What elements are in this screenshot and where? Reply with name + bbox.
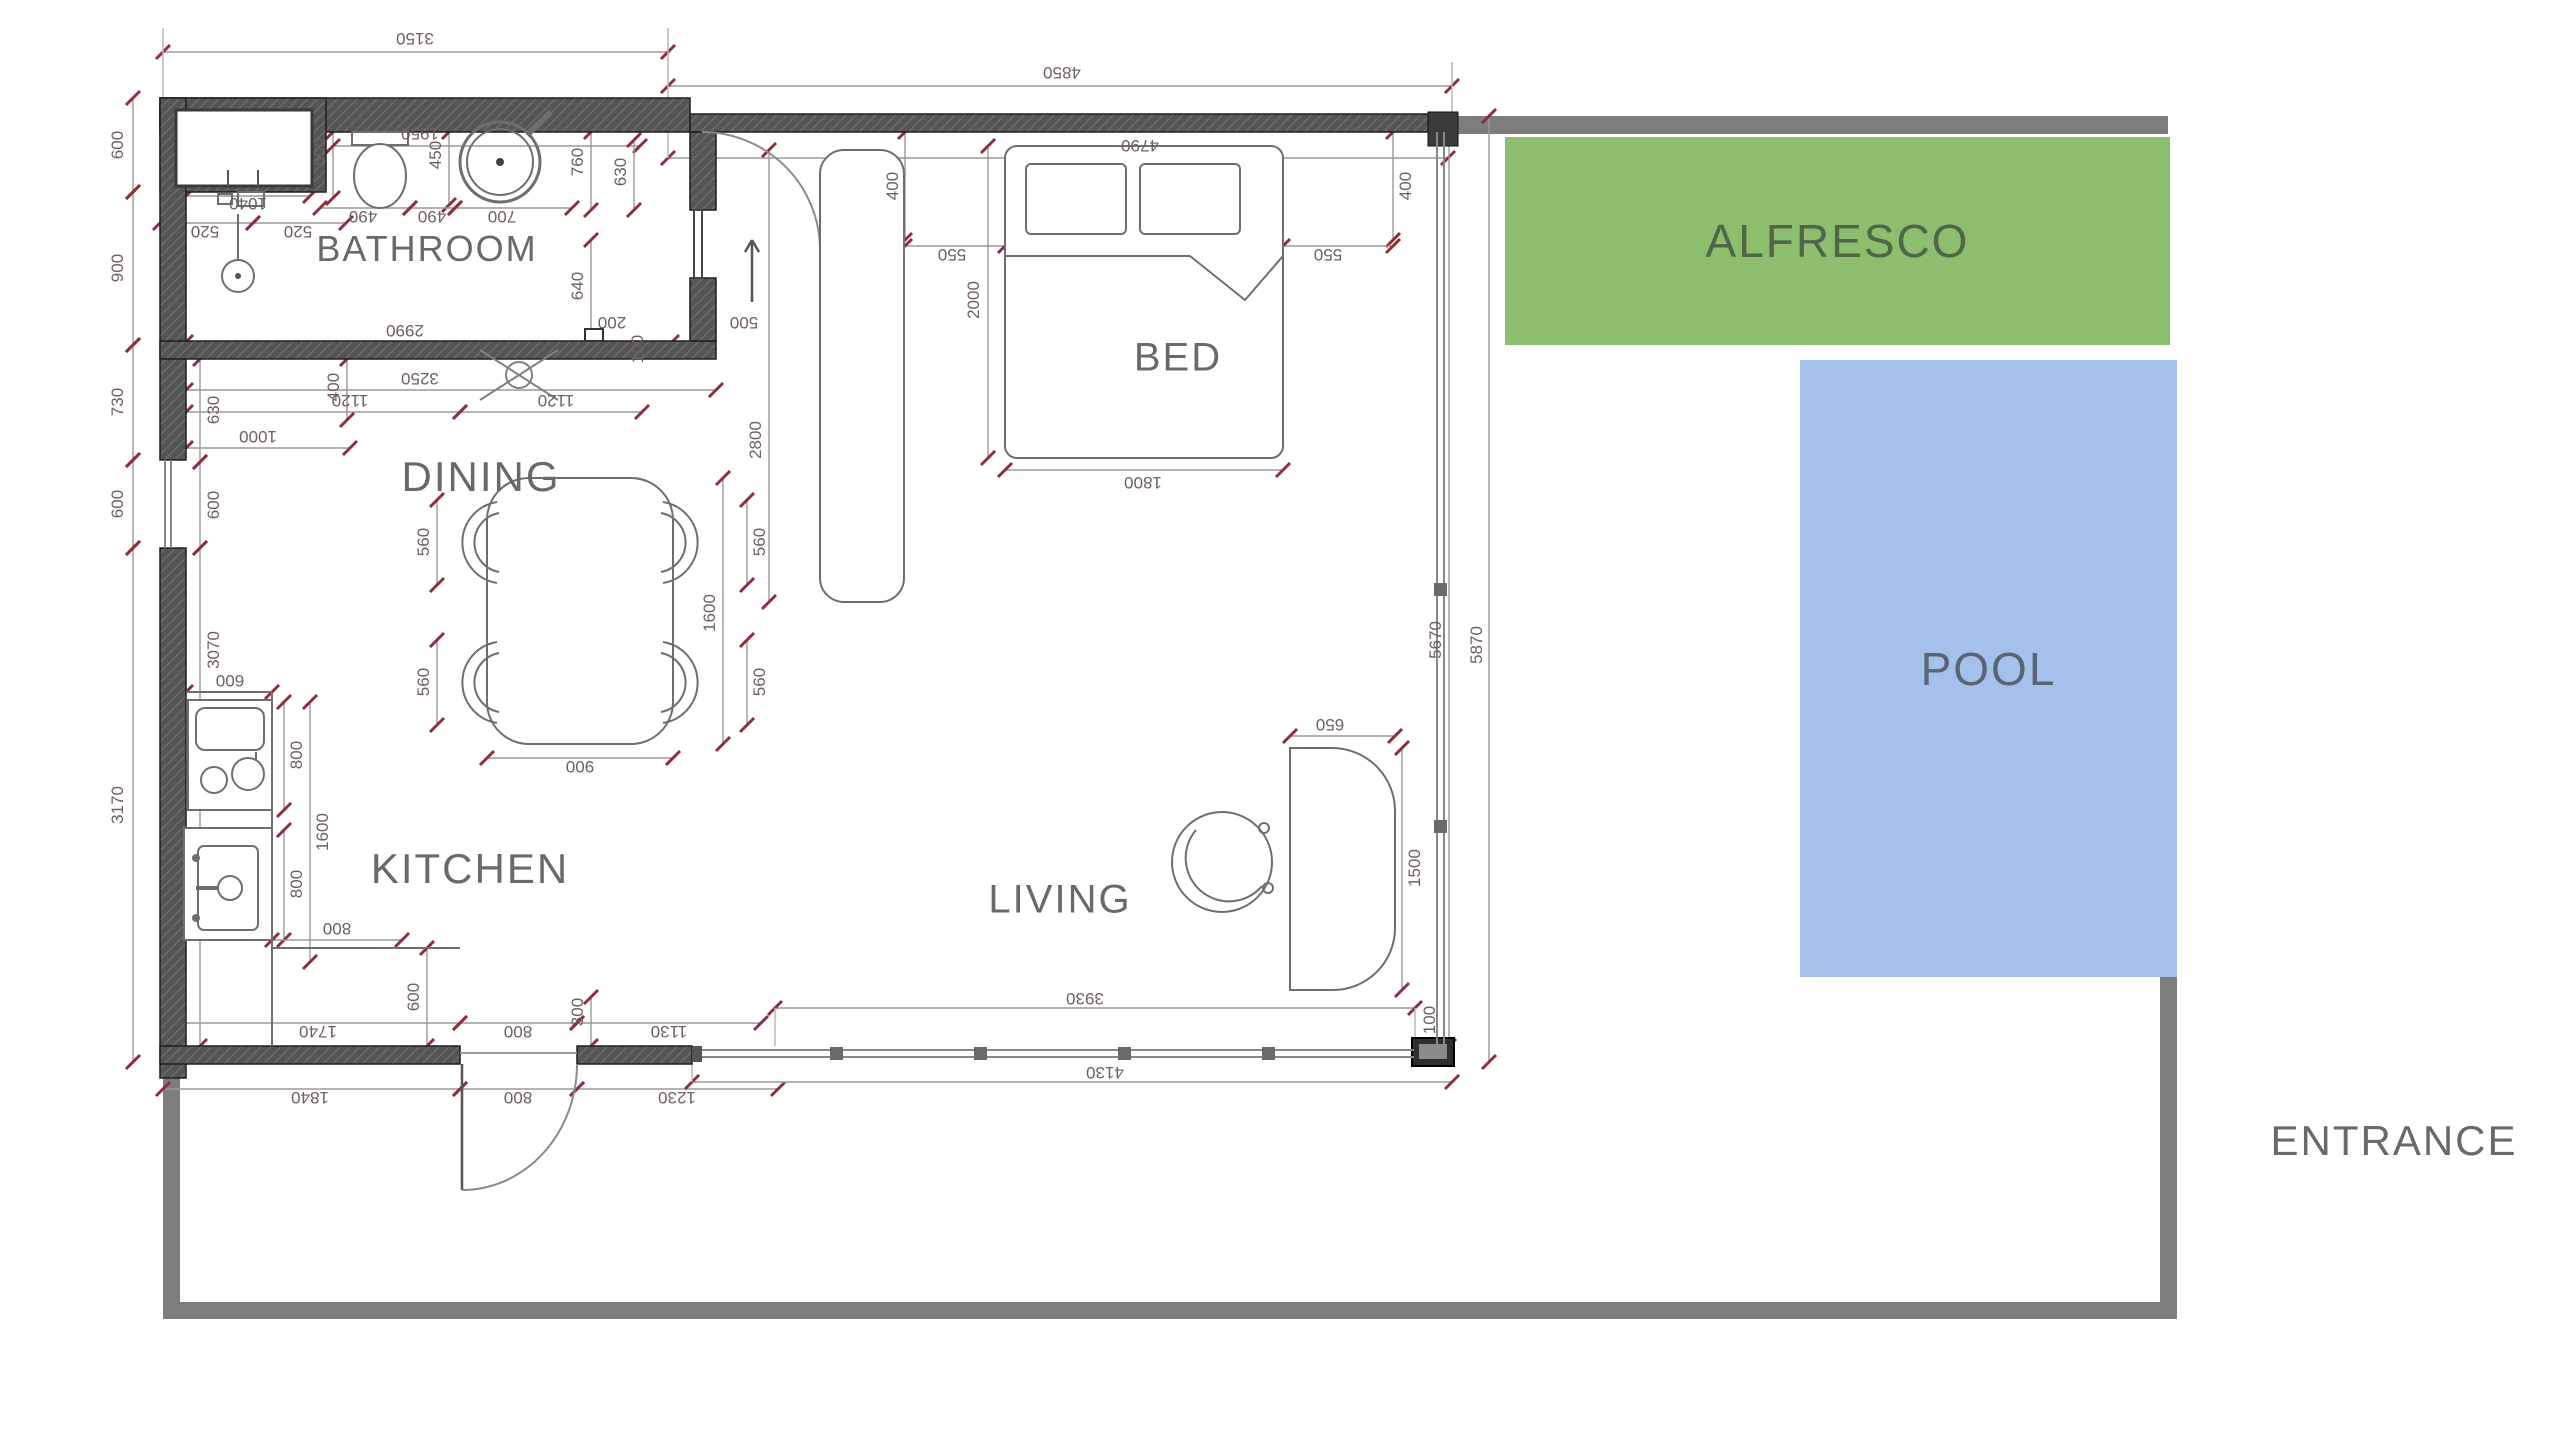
dimension-label: 550: [938, 244, 966, 264]
dimension-label: 800: [504, 1087, 532, 1107]
dimension-label: 1600: [313, 813, 333, 851]
dimension-label: 2990: [386, 320, 424, 340]
dimension-label: 200: [598, 312, 626, 332]
dimension-label: 600: [204, 491, 224, 519]
dimension-label: 900: [566, 756, 594, 776]
dimension-label: 600: [404, 983, 424, 1011]
door-swing-arc-entry: [462, 1064, 577, 1190]
dimension-label: 490: [418, 206, 446, 226]
dimension-label: 1000: [239, 426, 277, 446]
dimension-label: 3150: [396, 28, 434, 48]
kitchen-sink: [184, 828, 272, 940]
dimension-label: 520: [284, 221, 312, 241]
dimension-label: 560: [750, 668, 770, 696]
dimension-label: 900: [108, 254, 128, 282]
dimension-label: 550: [1314, 244, 1342, 264]
dimension-label: 100: [1420, 1006, 1440, 1034]
dimension-label: 1740: [299, 1021, 337, 1041]
room-label-kitchen: KITCHEN: [371, 845, 569, 893]
dimension-label: 2800: [746, 421, 766, 459]
dimension-label: 400: [324, 373, 344, 401]
dimension-label: 300: [568, 998, 588, 1026]
dimension-label: 760: [568, 148, 588, 176]
dimension-label: 400: [883, 172, 903, 200]
dimension-label: 500: [730, 312, 758, 332]
window-bottom: [692, 1046, 1414, 1062]
dimension-label: 630: [611, 158, 631, 186]
dimension-label: 1800: [1124, 472, 1162, 492]
dimension-label: 3170: [108, 786, 128, 824]
wardrobe: [820, 150, 904, 602]
dimension-label: 500: [310, 138, 330, 166]
sofa: [1290, 748, 1395, 990]
bathroom-door: [694, 210, 702, 278]
window-right: [1434, 132, 1447, 1046]
toilet: [352, 132, 408, 208]
dimension-label: 5870: [1467, 626, 1487, 664]
dimension-label: 700: [488, 206, 516, 226]
dimension-label: 600: [108, 490, 128, 518]
dimension-label: 1040: [229, 193, 267, 213]
dimension-label: 1840: [291, 1087, 329, 1107]
dimension-label: 1230: [658, 1087, 696, 1107]
dimension-label: 640: [568, 272, 588, 300]
bed: [1005, 146, 1283, 458]
dimension-label: 800: [287, 870, 307, 898]
dimension-label: 800: [323, 918, 351, 938]
dimension-label: 560: [750, 528, 770, 556]
dimension-label: 5670: [1426, 621, 1446, 659]
stove: [188, 700, 272, 810]
room-label-living: LIVING: [988, 878, 1131, 923]
dimension-label: 4130: [1086, 1062, 1124, 1082]
floor-plan: ALFRESCO POOL ENTRANCE: [0, 0, 2560, 1440]
room-label-dining: DINING: [402, 453, 561, 501]
dimension-label: 600: [108, 131, 128, 159]
entry-door: [460, 1053, 577, 1190]
bathtub: [176, 110, 312, 186]
dimension-label: 3930: [1066, 988, 1104, 1008]
room-label-bathroom: BATHROOM: [316, 228, 537, 270]
room-label-bed: BED: [1134, 336, 1222, 381]
dimension-label: 3250: [401, 368, 439, 388]
dimension-label: 1120: [538, 390, 575, 410]
dimension-label: 520: [191, 221, 219, 241]
dimension-label: 600: [216, 670, 244, 690]
window-left: [165, 460, 171, 548]
dimension-label: 630: [204, 396, 224, 424]
dimension-label: 560: [414, 668, 434, 696]
plan-linework: [0, 0, 2560, 1440]
dimension-label: 400: [1396, 172, 1416, 200]
dimension-label: 1600: [700, 594, 720, 632]
dimension-label: 450: [426, 141, 446, 169]
dimension-label: 2000: [964, 281, 984, 319]
dimension-label: 100: [628, 335, 648, 363]
dimension-label: 800: [287, 741, 307, 769]
up-arrow-icon: [745, 240, 759, 302]
dimension-label: 1500: [1405, 849, 1425, 887]
dimension-label: 800: [504, 1021, 532, 1041]
round-chair: [1172, 812, 1273, 912]
dimension-label: 650: [1316, 714, 1344, 734]
dimension-label: 1130: [651, 1021, 688, 1041]
dimension-label: 560: [414, 528, 434, 556]
dimension-label: 4790: [1121, 135, 1159, 155]
door-swing-arc-bedroom: [702, 132, 820, 250]
dimension-label: 490: [349, 206, 377, 226]
dimension-label: 3070: [204, 631, 224, 669]
dimension-label: 4850: [1043, 62, 1081, 82]
dining-table: [487, 478, 673, 744]
dimension-label: 730: [108, 388, 128, 416]
